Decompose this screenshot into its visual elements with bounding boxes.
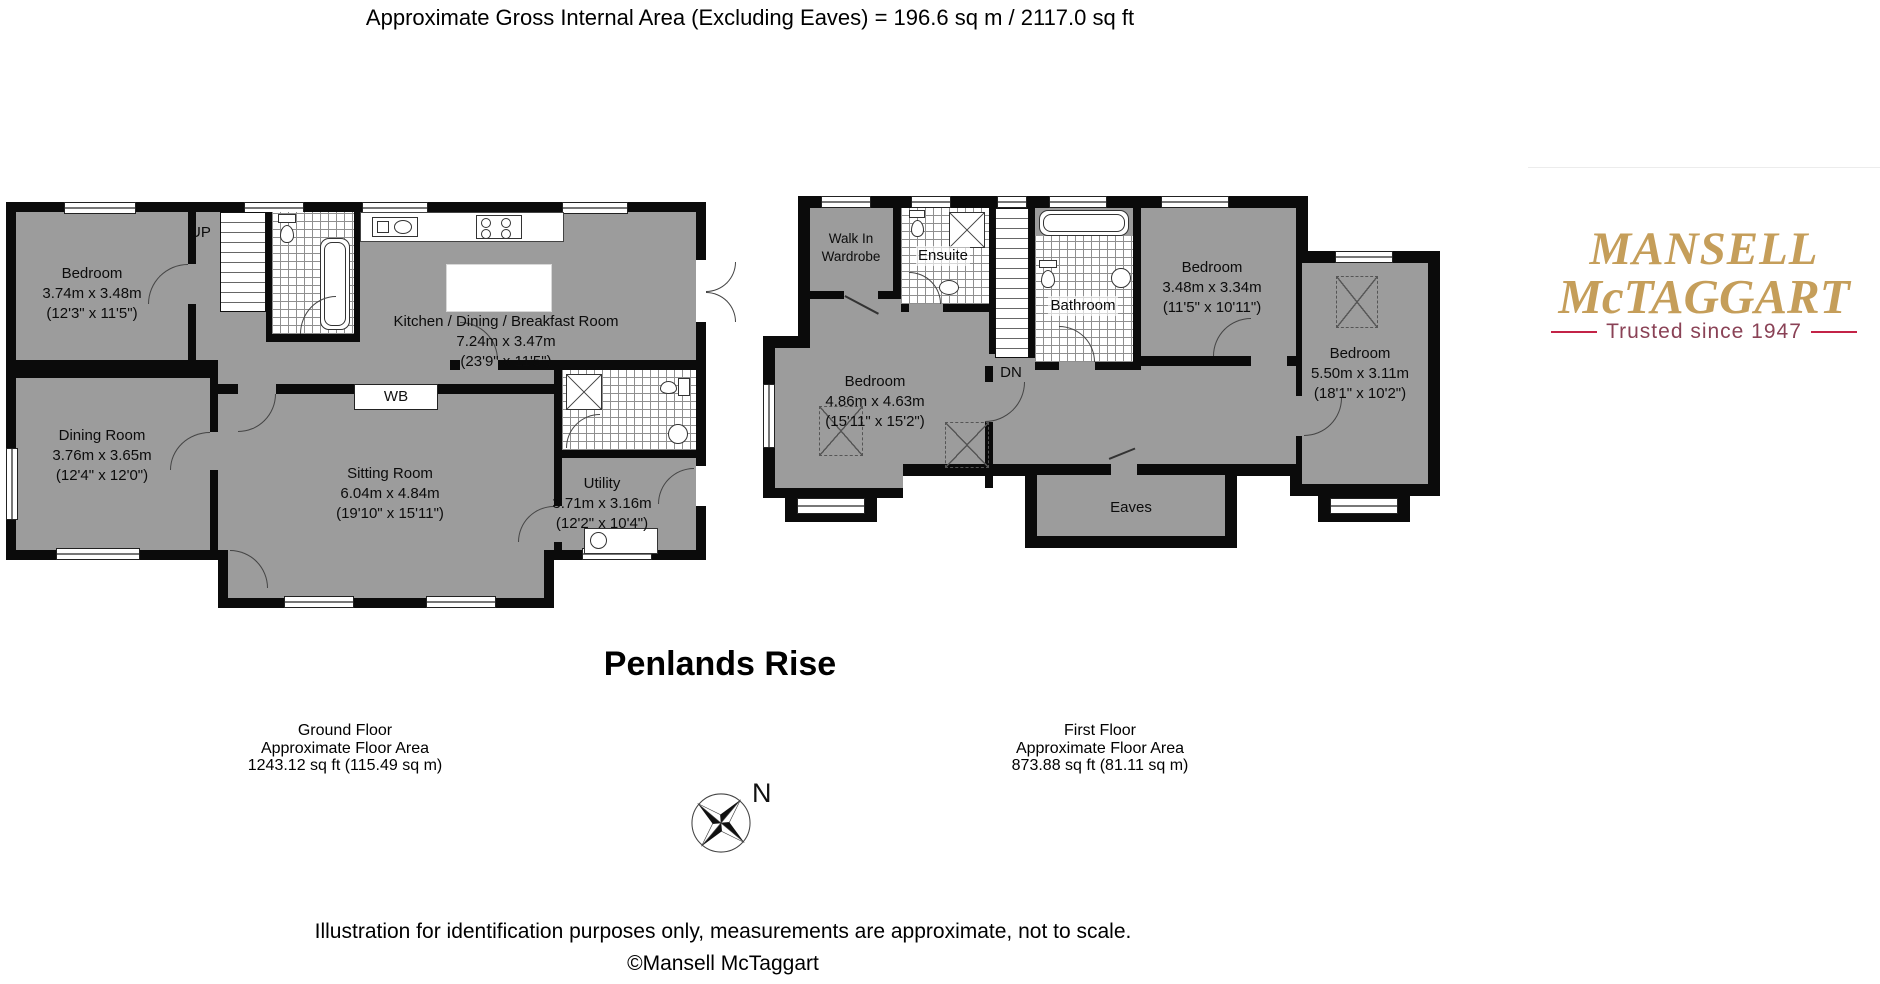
sink-bowl	[377, 221, 389, 233]
room-name: Ensuite	[916, 246, 970, 266]
toilet-icon	[1041, 270, 1055, 288]
window	[562, 202, 628, 214]
double-door-opening	[696, 260, 706, 322]
wall-segment	[218, 384, 238, 394]
room-dim-imperial: (23'9" x 11'5")	[366, 352, 646, 372]
wall-segment	[1141, 356, 1251, 366]
property-name: Penlands Rise	[420, 645, 1020, 684]
washer-drum	[590, 532, 607, 549]
stairs-up-label: UP	[190, 224, 211, 241]
room-dim-metric: 5.50m x 3.11m	[1289, 364, 1431, 384]
window	[821, 196, 871, 208]
window	[1335, 251, 1393, 263]
caption-area-label: Approximate Floor Area	[185, 740, 505, 758]
wall-segment	[16, 360, 218, 378]
wall-segment	[943, 304, 995, 312]
room-dim-metric: 3.74m x 3.48m	[22, 284, 162, 304]
window	[1049, 196, 1107, 208]
page-title: Approximate Gross Internal Area (Excludi…	[0, 5, 1500, 31]
window	[64, 202, 136, 214]
room-name: Utility	[532, 474, 672, 494]
room-label-dining-room: Dining Room 3.76m x 3.65m (12'4" x 12'0"…	[32, 426, 172, 486]
agent-logo: MANSELL McTAGGART Trusted since 1947	[1528, 167, 1880, 368]
stairs-down-label: DN	[981, 364, 1041, 381]
window	[1161, 196, 1229, 208]
wall-segment	[1133, 208, 1141, 370]
wall-segment	[562, 450, 696, 458]
caption-floor: Ground Floor	[185, 722, 505, 740]
bathtub-icon	[1039, 210, 1129, 236]
window	[911, 196, 951, 208]
caption-area-value: 1243.12 sq ft (115.49 sq m)	[185, 757, 505, 775]
room-name: Bedroom	[22, 264, 162, 284]
floorplan-page: Approximate Gross Internal Area (Excludi…	[0, 0, 1880, 984]
room-label-bathroom: Bathroom	[1045, 296, 1121, 316]
wardrobe-box: WB	[354, 384, 438, 410]
sink-bowl	[394, 220, 412, 234]
room-label-walk-in-wardrobe: Walk In Wardrobe	[816, 230, 886, 266]
toilet-icon	[909, 210, 925, 218]
toilet-icon	[678, 378, 690, 396]
window	[6, 448, 18, 520]
wall-segment	[210, 470, 218, 560]
wall-segment	[438, 384, 554, 394]
window	[997, 196, 1027, 208]
tagline-rule-right	[1811, 331, 1857, 333]
room-dim-imperial: (12'3" x 11'5")	[22, 304, 162, 324]
compass-north-label: N	[752, 778, 772, 809]
window	[56, 548, 140, 560]
room-label-bedroom: Bedroom 3.74m x 3.48m (12'3" x 11'5")	[22, 264, 162, 324]
toilet-icon	[911, 220, 924, 237]
room-dim-metric: 6.04m x 4.84m	[320, 484, 460, 504]
toilet-icon	[1039, 260, 1057, 268]
window	[426, 596, 496, 608]
wardrobe-symbol	[945, 422, 989, 468]
door-arc	[706, 292, 736, 322]
wall-segment	[554, 542, 562, 560]
caption-area-label: Approximate Floor Area	[940, 740, 1260, 758]
wall-segment	[210, 378, 218, 432]
staircase-up	[220, 212, 266, 312]
window	[763, 384, 775, 448]
first-floor-caption: First Floor Approximate Floor Area 873.8…	[940, 722, 1260, 775]
room-label-bedroom-main: Bedroom 4.86m x 4.63m (15'11" x 15'2")	[805, 372, 945, 432]
ground-floor-caption: Ground Floor Approximate Floor Area 1243…	[185, 722, 505, 775]
room-name: Eaves	[1081, 498, 1181, 518]
room-name: Dining Room	[32, 426, 172, 446]
logo-tagline: Trusted since 1947	[1528, 320, 1880, 344]
room-name: Bedroom	[1289, 344, 1431, 364]
room-dim-metric: 7.24m x 3.47m	[366, 332, 646, 352]
basin-icon	[1111, 268, 1131, 288]
caption-area-value: 873.88 sq ft (81.11 sq m)	[940, 757, 1260, 775]
hob-burner	[501, 229, 511, 239]
room-name: Walk In Wardrobe	[816, 230, 886, 266]
staircase-down	[995, 208, 1029, 358]
room-dim-imperial: (19'10" x 15'11")	[320, 504, 460, 524]
bay-window	[1330, 498, 1398, 514]
room-label-eaves: Eaves	[1081, 498, 1181, 518]
room-name: Kitchen / Dining / Breakfast Room	[366, 312, 646, 332]
eaves-access-opening	[1111, 464, 1137, 475]
room-dim-imperial: (11'5" x 10'11")	[1142, 298, 1282, 318]
wall-segment	[901, 304, 909, 312]
hob-burner	[501, 218, 511, 228]
room-dim-imperial: (15'11" x 15'2")	[805, 412, 945, 432]
wardrobe-symbol	[1336, 276, 1378, 328]
wall-segment	[276, 384, 354, 394]
window	[284, 596, 354, 608]
toilet-icon	[278, 214, 296, 223]
room-dim-metric: 3.76m x 3.65m	[32, 446, 172, 466]
compass-rose-icon	[688, 790, 754, 861]
room-label-ensuite: Ensuite	[907, 246, 979, 266]
room-label-utility: Utility 3.71m x 3.16m (12'2" x 10'4")	[532, 474, 672, 534]
shower-icon	[949, 212, 985, 248]
room-name: Bedroom	[805, 372, 945, 392]
room-label-bedroom-mid: Bedroom 3.48m x 3.34m (11'5" x 10'11")	[1142, 258, 1282, 318]
room-name: Sitting Room	[320, 464, 460, 484]
wall-segment	[810, 291, 844, 299]
room-dim-metric: 3.48m x 3.34m	[1142, 278, 1282, 298]
wall-segment	[188, 304, 196, 362]
first-floor-plan: DN Walk In Wardrobe Ensuite Bathroom	[763, 196, 1443, 606]
basin-icon	[668, 424, 688, 444]
hob-burner	[481, 229, 491, 239]
room-dim-metric: 3.71m x 3.16m	[532, 494, 672, 514]
door-opening	[696, 466, 706, 506]
room-name: Bedroom	[1142, 258, 1282, 278]
room-dim-imperial: (18'1" x 10'2")	[1289, 384, 1431, 404]
bay-window	[797, 498, 865, 514]
room-label-bedroom-long: Bedroom 5.50m x 3.11m (18'1" x 10'2")	[1289, 344, 1431, 404]
tagline-rule-left	[1551, 331, 1597, 333]
room-label-kitchen: Kitchen / Dining / Breakfast Room 7.24m …	[366, 312, 646, 372]
kitchen-island	[446, 264, 552, 312]
room-dim-metric: 4.86m x 4.63m	[805, 392, 945, 412]
wall-segment	[893, 208, 901, 299]
caption-floor: First Floor	[940, 722, 1260, 740]
room-dim-imperial: (12'4" x 12'0")	[32, 466, 172, 486]
room-name: Bathroom	[1048, 296, 1117, 316]
hob-burner	[481, 218, 491, 228]
copyright-text: ©Mansell McTaggart	[120, 952, 1326, 976]
basin-icon	[939, 280, 959, 295]
shower-icon	[566, 374, 602, 410]
disclaimer-text: Illustration for identification purposes…	[120, 920, 1326, 944]
room-label-sitting-room: Sitting Room 6.04m x 4.84m (19'10" x 15'…	[320, 464, 460, 524]
toilet-icon	[660, 381, 677, 394]
wall-segment	[266, 334, 360, 342]
toilet-icon	[280, 225, 294, 243]
tagline-text: Trusted since 1947	[1606, 320, 1802, 344]
ground-floor-plan: UP WB	[6, 202, 706, 608]
logo-name-line2: McTAGGART	[1528, 268, 1880, 325]
room-dim-imperial: (12'2" x 10'4")	[532, 514, 672, 534]
door-arc	[706, 262, 736, 292]
